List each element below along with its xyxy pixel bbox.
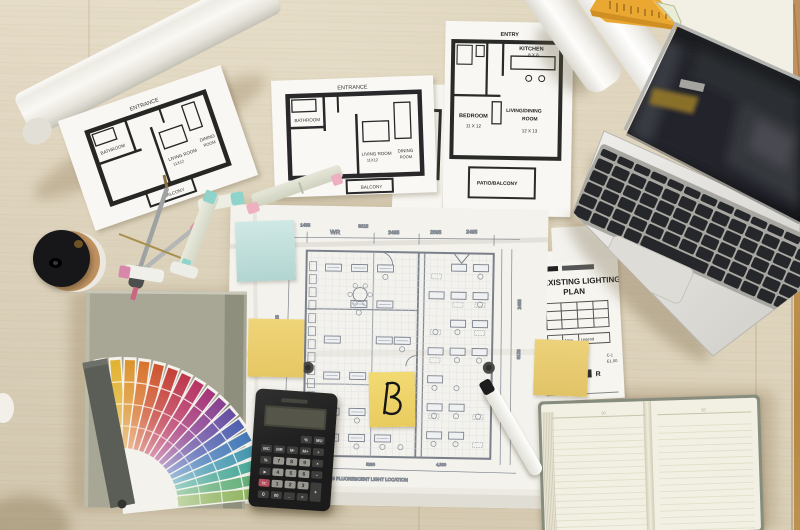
svg-text:MR: MR — [276, 447, 283, 452]
svg-text:MC: MC — [263, 446, 270, 451]
svg-text:MU: MU — [316, 438, 323, 443]
svg-text:M+: M+ — [302, 449, 309, 454]
svg-text:%: % — [264, 457, 268, 462]
svg-text:+: + — [314, 490, 317, 496]
svg-text:5C: 5C — [262, 481, 267, 485]
svg-text:%: % — [304, 437, 308, 442]
